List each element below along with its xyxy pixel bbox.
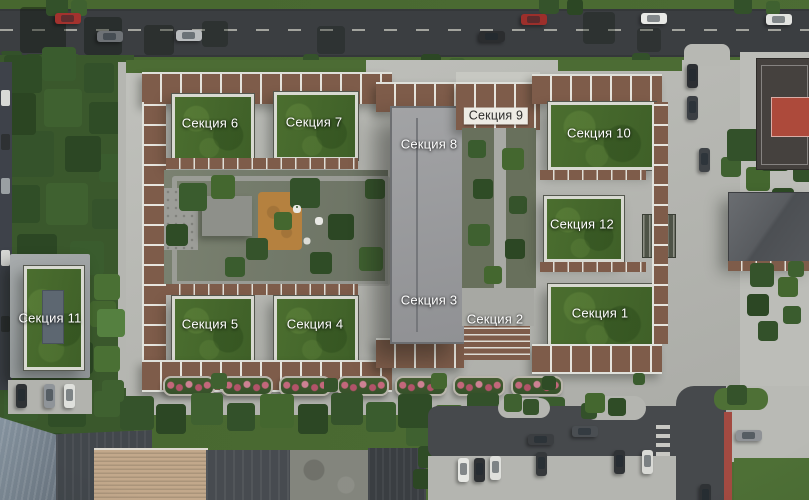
section-label-7[interactable]: Секция 7 <box>286 115 343 130</box>
section-label-11[interactable]: Секция 11 <box>19 311 82 326</box>
section-label-2[interactable]: Секция 2 <box>467 312 524 327</box>
section-labels-layer: Секция 1Секция 2Секция 3Секция 4Секция 5… <box>0 0 809 500</box>
section-label-4[interactable]: Секция 4 <box>287 317 344 332</box>
section-label-5[interactable]: Секция 5 <box>182 317 239 332</box>
masterplan-canvas: Секция 1Секция 2Секция 3Секция 4Секция 5… <box>0 0 809 500</box>
section-label-1[interactable]: Секция 1 <box>572 306 629 321</box>
section-label-10[interactable]: Секция 10 <box>567 126 631 141</box>
section-label-3[interactable]: Секция 3 <box>401 293 458 308</box>
section-label-6[interactable]: Секция 6 <box>182 116 239 131</box>
section-label-9[interactable]: Секция 9 <box>464 108 528 125</box>
section-label-12[interactable]: Секция 12 <box>550 217 614 232</box>
section-label-8[interactable]: Секция 8 <box>401 137 458 152</box>
